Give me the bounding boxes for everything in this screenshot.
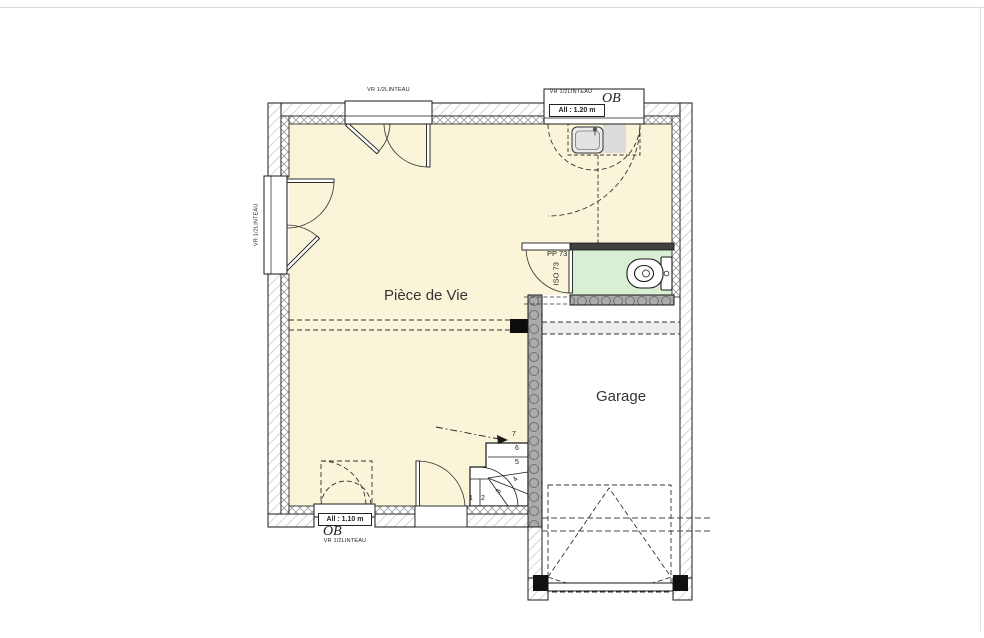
wc-door-iso-label: ISO 73 — [552, 252, 560, 296]
garage-separating-wall — [528, 295, 542, 527]
stair-step-2: 2 — [481, 495, 485, 502]
garage-door-jamb-left — [533, 575, 548, 591]
toilet — [627, 257, 672, 290]
entrance-door-opening — [415, 506, 467, 527]
window-type-label-bottom: OB — [323, 525, 342, 539]
sink-faucet — [593, 127, 597, 131]
floor-plan-page: { "plan": { "rooms": { "living": {"label… — [0, 0, 984, 638]
room-label-garage: Garage — [596, 389, 646, 404]
room-label-living: Pièce de Vie — [384, 288, 468, 303]
structural-post — [510, 319, 529, 333]
window-top-left-frame — [345, 101, 432, 124]
sill-height-label-top-right: All : 1.20 m — [549, 104, 605, 117]
kitchen-wc-partition — [570, 243, 674, 250]
wc-threshold-zone — [542, 295, 570, 305]
wc-garage-wall — [570, 295, 674, 305]
stair-step-6: 6 — [515, 445, 519, 452]
kitchen-appliance — [603, 121, 626, 153]
entrance-door-leaf — [416, 461, 420, 508]
garage-door-panel — [548, 583, 673, 591]
toilet-flush-button — [664, 271, 669, 276]
top-door-right-leaf — [427, 123, 431, 167]
shutter-label-top-left: VR 1/2LINTEAU — [345, 88, 432, 94]
stair-step-7: 7 — [512, 431, 516, 438]
stair-step-5: 5 — [515, 459, 519, 466]
wc-door-leaf — [569, 248, 573, 293]
left-door-top-leaf — [287, 179, 334, 183]
shutter-label-bottom: VR 1/2LINTEAU — [317, 539, 373, 545]
floor-plan-drawing — [0, 0, 984, 638]
stair-step-1: 1 — [469, 495, 473, 502]
garage-floor — [542, 305, 680, 578]
shutter-label-left: VR 1/2LINTEAU — [254, 192, 260, 258]
window-left-frame — [264, 176, 287, 274]
garage-door-jamb-right — [673, 575, 688, 591]
shutter-label-top-right: VR 1/2LINTEAU — [546, 90, 596, 96]
